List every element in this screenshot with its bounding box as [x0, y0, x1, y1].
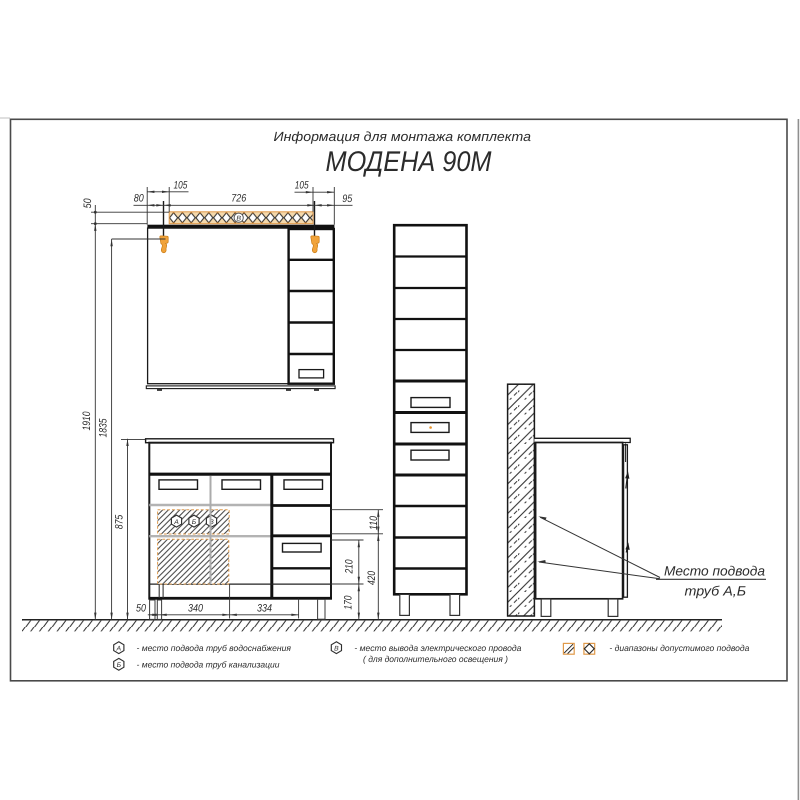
svg-text:А: А	[116, 646, 122, 653]
svg-text:420: 420	[366, 571, 378, 585]
svg-text:В: В	[334, 646, 339, 653]
svg-text:95: 95	[342, 193, 353, 205]
svg-text:1835: 1835	[98, 418, 110, 438]
svg-text:1910: 1910	[81, 412, 93, 431]
svg-text:Место подвода: Место подвода	[664, 564, 765, 579]
svg-text:МОДЕНА 90М: МОДЕНА 90М	[326, 146, 492, 178]
svg-text:В: В	[236, 215, 241, 222]
svg-text:- место подвода труб водоснаб: - место подвода труб водоснабжения	[137, 643, 292, 653]
svg-text:( для дополнительного освещени: ( для дополнительного освещения )	[363, 654, 508, 664]
svg-text:80: 80	[134, 193, 144, 205]
svg-text:50: 50	[136, 602, 146, 614]
svg-text:105: 105	[295, 180, 310, 192]
svg-text:110: 110	[368, 516, 380, 530]
svg-text:726: 726	[231, 193, 246, 205]
svg-text:50: 50	[82, 198, 94, 208]
svg-text:340: 340	[188, 602, 203, 614]
svg-text:Информация для монтажа комплек: Информация для монтажа комплекта	[274, 129, 532, 144]
svg-text:105: 105	[174, 180, 189, 192]
svg-text:А: А	[173, 519, 179, 526]
svg-text:- место подвода труб канализа: - место подвода труб канализации	[137, 659, 280, 669]
svg-text:334: 334	[257, 602, 272, 614]
svg-text:Б: Б	[192, 519, 197, 526]
svg-text:Б: Б	[117, 662, 122, 669]
svg-text:210: 210	[343, 560, 355, 575]
svg-text:- место вывода электрического: - место вывода электрического провода	[354, 643, 521, 653]
svg-text:- диапазоны допустимого подво: - диапазоны допустимого подвода	[609, 643, 749, 653]
svg-text:875: 875	[113, 514, 125, 529]
svg-text:труб А,Б: труб А,Б	[685, 584, 747, 599]
svg-text:170: 170	[342, 596, 354, 610]
